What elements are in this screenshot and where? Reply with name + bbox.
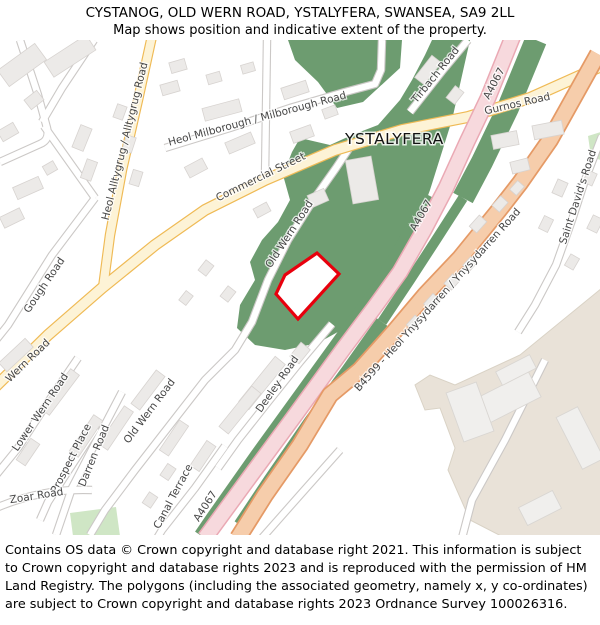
map-subtitle: Map shows position and indicative extent… [0, 22, 600, 39]
page-header: CYSTANOG, OLD WERN ROAD, YSTALYFERA, SWA… [0, 0, 600, 40]
map-container: YSTALYFERA Heol Alltygrug / Alltygrug Ro… [0, 40, 600, 535]
map-canvas: YSTALYFERA Heol Alltygrug / Alltygrug Ro… [0, 40, 600, 535]
place-label: YSTALYFERA [344, 130, 444, 148]
property-address-title: CYSTANOG, OLD WERN ROAD, YSTALYFERA, SWA… [0, 5, 600, 22]
copyright-notice: Contains OS data © Crown copyright and d… [0, 535, 600, 615]
